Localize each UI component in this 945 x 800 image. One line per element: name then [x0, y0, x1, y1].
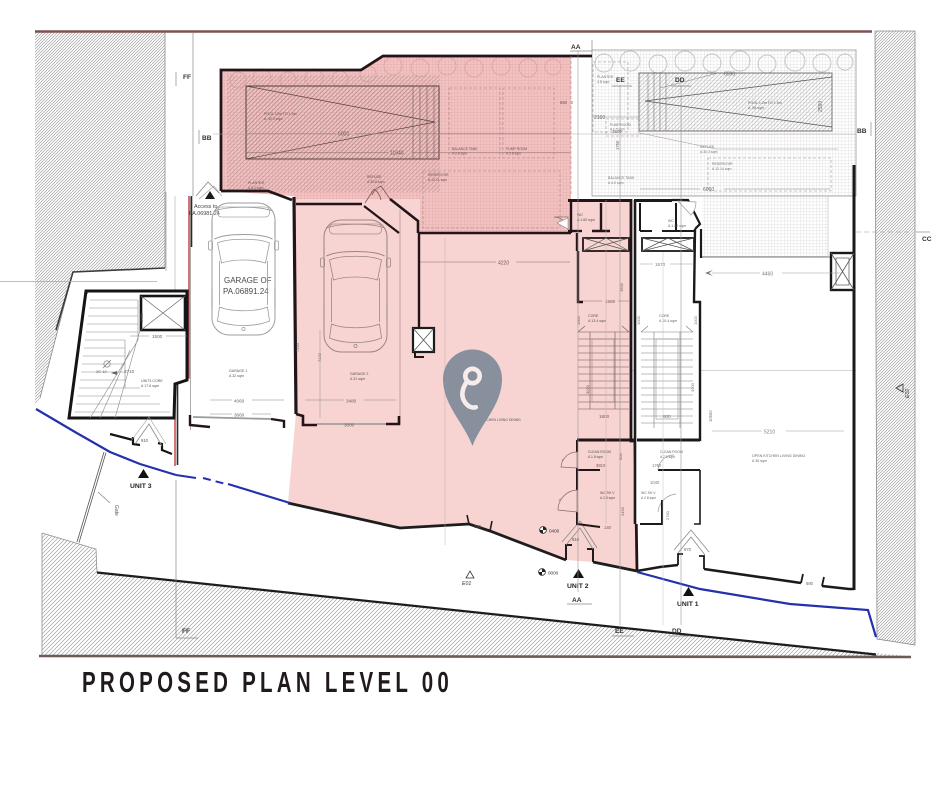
svg-text:PA.06891.24: PA.06891.24	[223, 287, 269, 296]
svg-text:1800: 1800	[599, 414, 610, 419]
svg-text:A 4.0 sqm: A 4.0 sqm	[608, 181, 624, 185]
svg-text:GARAGE 2: GARAGE 2	[350, 372, 368, 376]
svg-text:680: 680	[806, 581, 814, 586]
svg-text:POOL 1.2m TO 1.5m: POOL 1.2m TO 1.5m	[748, 101, 782, 105]
svg-text:4220: 4220	[498, 261, 509, 267]
svg-text:1000: 1000	[636, 315, 641, 325]
svg-text:EE: EE	[615, 628, 624, 635]
svg-text:1570: 1570	[655, 262, 666, 267]
svg-text:UNIT 3: UNIT 3	[130, 483, 152, 490]
svg-text:140: 140	[604, 525, 612, 530]
svg-text:11640: 11640	[390, 151, 404, 157]
svg-text:6590: 6590	[724, 72, 735, 78]
svg-text:A 8.2 sqm: A 8.2 sqm	[248, 186, 264, 190]
svg-text:3660: 3660	[234, 413, 245, 418]
svg-text:POOL 12m TO 1.5m: POOL 12m TO 1.5m	[264, 112, 297, 116]
svg-text:E02: E02	[905, 389, 911, 398]
svg-text:AA: AA	[571, 44, 581, 51]
svg-text:4.8 sqm: 4.8 sqm	[597, 80, 610, 84]
svg-text:E01: E01	[462, 581, 471, 587]
svg-text:910: 910	[572, 537, 580, 542]
svg-text:1500: 1500	[152, 334, 163, 339]
svg-text:REFUSE: REFUSE	[367, 175, 382, 179]
svg-text:Gate: Gate	[113, 505, 119, 516]
svg-text:6060: 6060	[703, 187, 714, 193]
svg-text:3000: 3000	[690, 382, 695, 392]
svg-text:DD: DD	[672, 628, 682, 635]
svg-text:WC: WC	[668, 219, 674, 223]
svg-text:BB: BB	[202, 135, 212, 142]
svg-text:3030: 3030	[585, 384, 590, 394]
svg-text:OPEN KITCHEN LIVING DINING: OPEN KITCHEN LIVING DINING	[752, 454, 806, 458]
svg-text:DD: DD	[675, 77, 685, 84]
svg-text:2160: 2160	[594, 115, 605, 121]
svg-text:FF: FF	[182, 628, 190, 635]
svg-text:RESERVOIR: RESERVOIR	[712, 162, 733, 166]
svg-text:PUMP ROOM: PUMP ROOM	[610, 123, 631, 127]
svg-text:1750: 1750	[615, 140, 620, 150]
svg-text:1540: 1540	[612, 129, 622, 134]
svg-text:7150: 7150	[295, 342, 300, 352]
svg-text:CC: CC	[922, 236, 932, 243]
svg-text:FF: FF	[183, 74, 191, 81]
svg-text:A 12.11 sqm: A 12.11 sqm	[428, 178, 447, 182]
svg-text:BALANCE TANK: BALANCE TANK	[608, 176, 635, 180]
svg-text:2780: 2780	[665, 510, 670, 520]
svg-text:PUMP ROOM: PUMP ROOM	[506, 147, 527, 151]
svg-text:2450: 2450	[620, 506, 625, 516]
svg-text:0000: 0000	[548, 571, 559, 576]
svg-text:1000: 1000	[576, 315, 581, 325]
svg-text:10660: 10660	[708, 410, 713, 422]
svg-text:EE: EE	[616, 77, 625, 84]
svg-text:A 10.4 sqm: A 10.4 sqm	[659, 319, 677, 323]
svg-text:WC SH V: WC SH V	[641, 491, 656, 495]
svg-text:PROPOSED PLAN LEVEL 00: PROPOSED PLAN LEVEL 00	[82, 667, 453, 699]
svg-text:UNIT 1: UNIT 1	[677, 601, 699, 608]
svg-text:20' 10: 20' 10	[96, 369, 108, 374]
svg-text:CLEAN ROOM: CLEAN ROOM	[660, 450, 683, 454]
svg-text:BALANCE TANK: BALANCE TANK	[452, 147, 478, 151]
svg-text:A 2.8 sqm: A 2.8 sqm	[641, 496, 656, 500]
svg-text:5210: 5210	[764, 430, 775, 436]
svg-text:CLEAN ROOM: CLEAN ROOM	[588, 450, 611, 454]
svg-text:WC SH V: WC SH V	[600, 491, 615, 495]
svg-text:PLANTER: PLANTER	[597, 75, 614, 79]
svg-text:1000: 1000	[693, 315, 698, 325]
svg-text:7130: 7130	[317, 352, 322, 362]
svg-text:970: 970	[684, 547, 692, 552]
svg-text:1760: 1760	[652, 463, 662, 468]
svg-text:A 13.4 sqm: A 13.4 sqm	[588, 319, 606, 323]
svg-text:A 31 sqm: A 31 sqm	[350, 377, 365, 381]
svg-text:Access to: Access to	[194, 204, 217, 210]
svg-text:PLANTER: PLANTER	[248, 181, 265, 185]
svg-text:PA.06981.24: PA.06981.24	[189, 211, 220, 217]
svg-text:A. W 3 sqm: A. W 3 sqm	[264, 117, 283, 121]
svg-text:2710: 2710	[124, 369, 135, 374]
svg-text:A 1.02 sqm: A 1.02 sqm	[668, 224, 686, 228]
svg-text:2590: 2590	[818, 101, 824, 112]
svg-text:A 7.8 sqm: A 7.8 sqm	[660, 455, 675, 459]
svg-text:A 2.8 sqm: A 2.8 sqm	[506, 152, 521, 156]
svg-text:1580: 1580	[605, 299, 616, 304]
svg-text:CORE: CORE	[588, 314, 599, 318]
svg-text:RESERVOIR: RESERVOIR	[428, 173, 449, 177]
svg-text:900: 900	[618, 453, 623, 460]
svg-text:1040: 1040	[650, 480, 660, 485]
svg-text:A. 56 sqm: A. 56 sqm	[748, 106, 764, 110]
svg-text:A 1.8 sqm: A 1.8 sqm	[588, 455, 603, 459]
svg-text:A 1.60 sqm: A 1.60 sqm	[577, 218, 595, 222]
svg-text:A 30.3 sqm: A 30.3 sqm	[700, 150, 718, 154]
svg-text:3480: 3480	[346, 399, 357, 404]
svg-text:800: 800	[663, 414, 671, 419]
svg-text:A 17.6 sqm: A 17.6 sqm	[141, 384, 159, 388]
svg-text:A 2.8 sqm: A 2.8 sqm	[600, 496, 615, 500]
svg-text:0400: 0400	[549, 529, 560, 534]
svg-text:A 12.14 sqm: A 12.14 sqm	[712, 167, 732, 171]
svg-text:660: 660	[560, 100, 568, 105]
svg-text:1680: 1680	[139, 312, 144, 322]
svg-text:910: 910	[141, 438, 149, 443]
svg-text:A 30.8 sqm: A 30.8 sqm	[367, 180, 385, 184]
svg-text:3000: 3000	[344, 423, 355, 428]
svg-text:BB: BB	[857, 128, 867, 135]
svg-text:A 2.8 sqm: A 2.8 sqm	[452, 152, 467, 156]
svg-text:4060: 4060	[234, 399, 245, 404]
svg-text:A 32 sqm: A 32 sqm	[229, 374, 244, 378]
svg-text:CORE: CORE	[659, 314, 670, 318]
svg-text:AA: AA	[572, 597, 582, 604]
svg-text:GARAGE OF: GARAGE OF	[224, 276, 272, 285]
svg-text:680: 680	[474, 524, 482, 529]
svg-text:4460: 4460	[762, 272, 773, 278]
svg-text:UNIT3 CORE: UNIT3 CORE	[141, 379, 163, 383]
svg-text:3810: 3810	[596, 463, 606, 468]
svg-text:6000: 6000	[338, 132, 349, 138]
svg-text:A 35 sqm: A 35 sqm	[752, 459, 767, 463]
svg-text:GARAGE 1: GARAGE 1	[229, 369, 247, 373]
